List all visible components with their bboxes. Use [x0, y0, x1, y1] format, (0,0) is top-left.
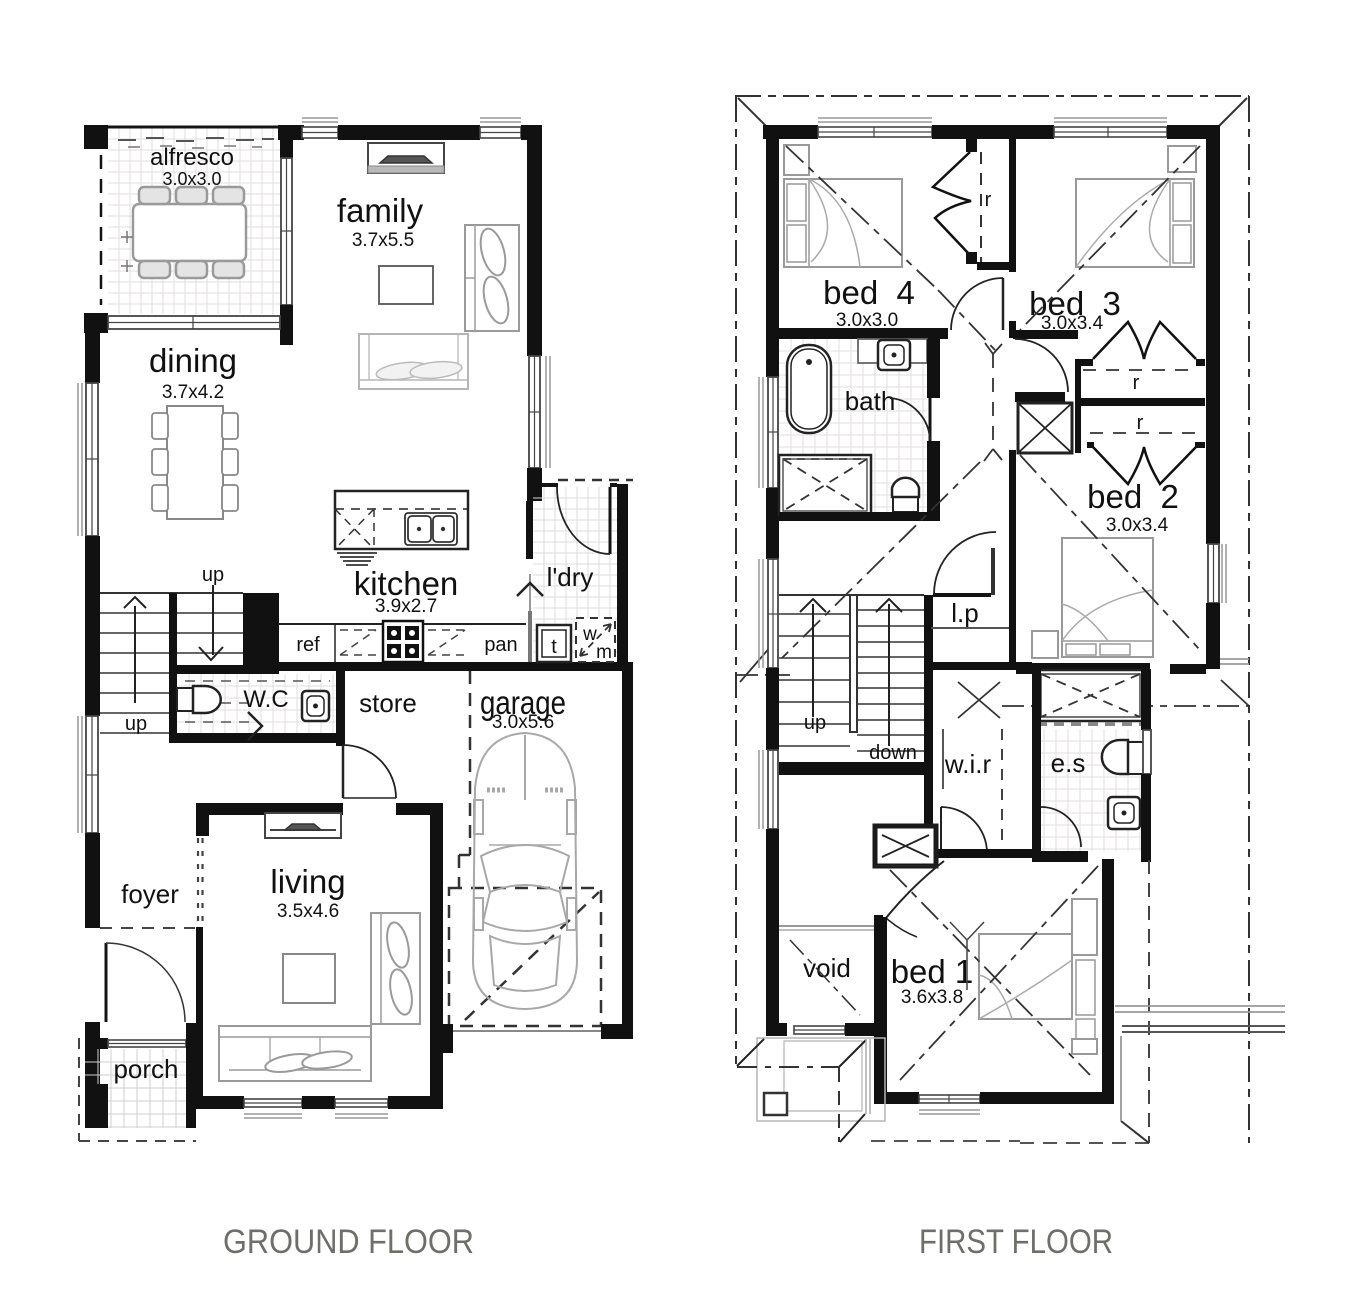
svg-text:store: store: [359, 688, 417, 718]
svg-text:ref: ref: [296, 634, 320, 656]
svg-text:pan: pan: [484, 634, 517, 656]
svg-text:FIRST FLOOR: FIRST FLOOR: [919, 1223, 1113, 1261]
svg-text:W.C: W.C: [243, 686, 288, 713]
svg-text:w.i.r: w.i.r: [944, 749, 992, 779]
svg-text:3.7x4.2: 3.7x4.2: [162, 382, 224, 403]
svg-text:GROUND FLOOR: GROUND FLOOR: [223, 1223, 474, 1261]
svg-text:down: down: [869, 742, 917, 764]
svg-text:r: r: [985, 189, 992, 211]
svg-text:m: m: [596, 642, 612, 663]
svg-text:void: void: [803, 953, 851, 983]
svg-text:3.9x2.7: 3.9x2.7: [375, 596, 437, 617]
svg-text:3.6x3.8: 3.6x3.8: [901, 987, 963, 1008]
svg-text:bath: bath: [845, 386, 896, 416]
svg-text:family: family: [337, 192, 424, 229]
svg-text:l'dry: l'dry: [547, 562, 594, 592]
svg-text:bed 1: bed 1: [891, 953, 974, 990]
svg-text:t: t: [551, 636, 557, 658]
svg-text:up: up: [125, 713, 147, 735]
svg-text:3.7x5.5: 3.7x5.5: [352, 230, 414, 251]
svg-text:3.0x3.4: 3.0x3.4: [1106, 515, 1169, 536]
svg-text:w: w: [582, 624, 597, 645]
svg-text:3.5x4.6: 3.5x4.6: [277, 901, 339, 922]
svg-text:3.0x3.0: 3.0x3.0: [162, 169, 221, 189]
svg-text:up: up: [202, 564, 224, 586]
svg-text:living: living: [270, 863, 345, 900]
svg-text:l.p: l.p: [951, 598, 978, 628]
svg-text:r: r: [1133, 372, 1140, 394]
svg-text:alfresco: alfresco: [150, 144, 234, 171]
svg-text:up: up: [804, 712, 826, 734]
svg-text:bed 2: bed 2: [1087, 478, 1179, 515]
svg-text:r: r: [1137, 412, 1144, 434]
svg-text:e.s: e.s: [1051, 748, 1086, 778]
svg-text:foyer: foyer: [121, 879, 179, 909]
svg-text:3.0x3.4: 3.0x3.4: [1041, 313, 1104, 334]
svg-text:3.0x3.0: 3.0x3.0: [836, 310, 898, 331]
svg-text:dining: dining: [149, 342, 237, 379]
svg-text:3.0x5.6: 3.0x5.6: [492, 712, 554, 733]
svg-text:porch: porch: [113, 1054, 178, 1084]
svg-text:bed 4: bed 4: [823, 274, 915, 311]
